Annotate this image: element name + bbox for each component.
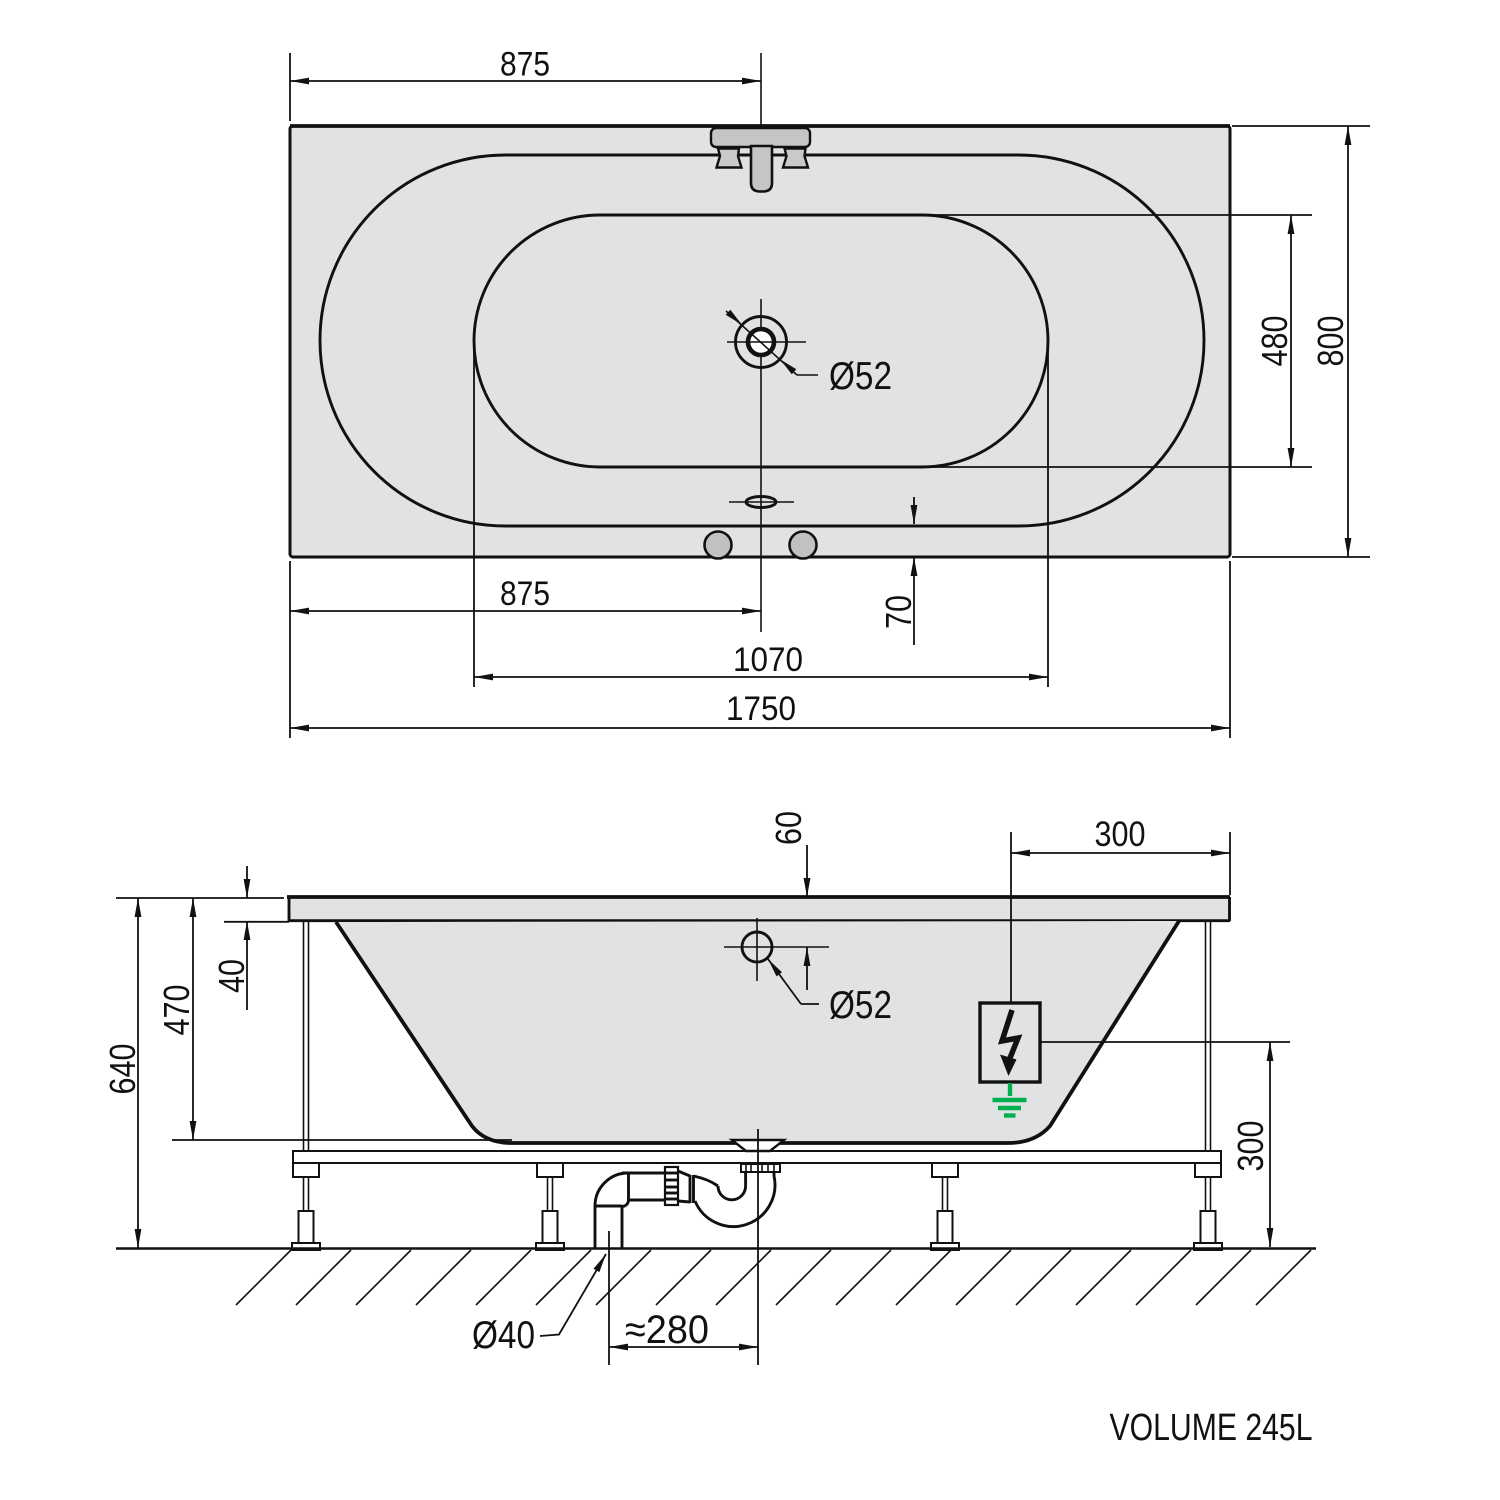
svg-text:Ø52: Ø52 bbox=[829, 984, 892, 1027]
svg-text:≈280: ≈280 bbox=[625, 1308, 709, 1352]
svg-text:300: 300 bbox=[1095, 815, 1146, 854]
svg-text:300: 300 bbox=[1230, 1121, 1271, 1172]
svg-text:800: 800 bbox=[1310, 316, 1351, 367]
svg-text:480: 480 bbox=[1254, 316, 1295, 367]
svg-text:Ø40: Ø40 bbox=[472, 1314, 535, 1357]
svg-text:640: 640 bbox=[102, 1044, 143, 1095]
svg-text:Ø52: Ø52 bbox=[829, 355, 892, 398]
svg-text:1750: 1750 bbox=[726, 690, 796, 728]
svg-text:470: 470 bbox=[156, 985, 197, 1036]
svg-text:70: 70 bbox=[878, 595, 919, 629]
svg-text:VOLUME 245L: VOLUME 245L bbox=[1110, 1407, 1313, 1449]
svg-text:60: 60 bbox=[768, 811, 809, 845]
svg-text:875: 875 bbox=[500, 46, 550, 84]
svg-text:1070: 1070 bbox=[733, 641, 803, 679]
svg-text:40: 40 bbox=[211, 959, 252, 993]
svg-text:875: 875 bbox=[500, 575, 550, 613]
